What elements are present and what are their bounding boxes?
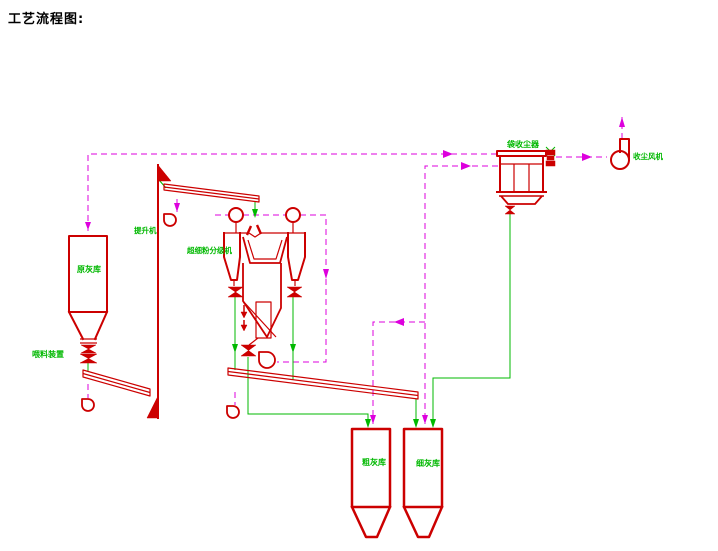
arrow-into-classifier	[252, 209, 258, 218]
process-flow-diagram: 原灰库 喂料装置 提升机 超细粉分级机 袋收尘器 收尘风机 粗灰库 细灰库	[0, 0, 718, 551]
arrow-into-raw-silo	[85, 222, 91, 230]
arrow-left-hopper	[232, 344, 238, 353]
bucket-elevator	[147, 165, 171, 418]
elevator-boot	[147, 396, 158, 418]
elevator-label: 提升机	[134, 225, 157, 235]
discharge-valve-icon	[241, 345, 256, 356]
process-flow-drawing: 工艺流程图:	[0, 0, 718, 551]
arrow-right-hopper	[290, 344, 296, 353]
top-conveyor	[164, 184, 259, 202]
classifier-label: 超细粉分级机	[186, 245, 232, 255]
arrow-into-fine-silo-1	[413, 419, 419, 428]
fan-symbols	[82, 214, 275, 418]
fine-ash-silo-label: 细灰库	[416, 458, 440, 468]
hopper-valve-icon	[287, 287, 302, 297]
vent-fan-icon	[227, 406, 239, 418]
arrow-into-fine-silo-2	[430, 419, 436, 428]
feeding-device-label: 喂料装置	[32, 349, 64, 359]
arrow-branch-left	[394, 318, 404, 326]
arrow-elevator-vent	[174, 203, 180, 212]
coarse-ash-silo-label: 粗灰库	[362, 457, 386, 467]
arrow-into-coarse-silo	[365, 419, 371, 428]
raw-ash-silo-label: 原灰库	[77, 264, 101, 274]
exhaust-port	[547, 156, 554, 160]
feeder-conveyor	[83, 370, 150, 396]
collecting-conveyor	[228, 368, 418, 399]
elevator-head	[158, 165, 171, 181]
arrow-into-fine-silo-air	[422, 415, 428, 424]
arrow-to-collector-top	[443, 150, 453, 158]
feed-valve-icon	[80, 354, 97, 363]
coarse-ash-silo	[352, 429, 390, 537]
arrow-to-fan	[582, 153, 592, 161]
dust-collection-fan	[611, 139, 629, 169]
arrow-to-collector-inlet	[461, 162, 471, 170]
raw-ash-silo	[69, 236, 107, 363]
arrow-fan-exhaust	[619, 117, 625, 127]
collector-valve-icon	[505, 206, 515, 214]
vent-fan-icon	[164, 214, 176, 226]
bag-dust-collector-label: 袋收尘器	[506, 139, 540, 149]
exhaust-port	[546, 150, 555, 155]
fine-ash-silo	[404, 429, 442, 537]
arrow-classifier-down	[323, 269, 329, 279]
arrow-into-coarse-silo-air	[370, 415, 376, 424]
exhaust-port	[546, 161, 555, 166]
feed-valve-icon	[81, 345, 96, 353]
classifier-fan-icon	[259, 352, 275, 368]
vent-fan-icon	[82, 399, 94, 411]
hopper-valve-icon	[228, 287, 243, 297]
dust-fan-label: 收尘风机	[633, 151, 663, 161]
bag-dust-collector	[497, 150, 555, 214]
